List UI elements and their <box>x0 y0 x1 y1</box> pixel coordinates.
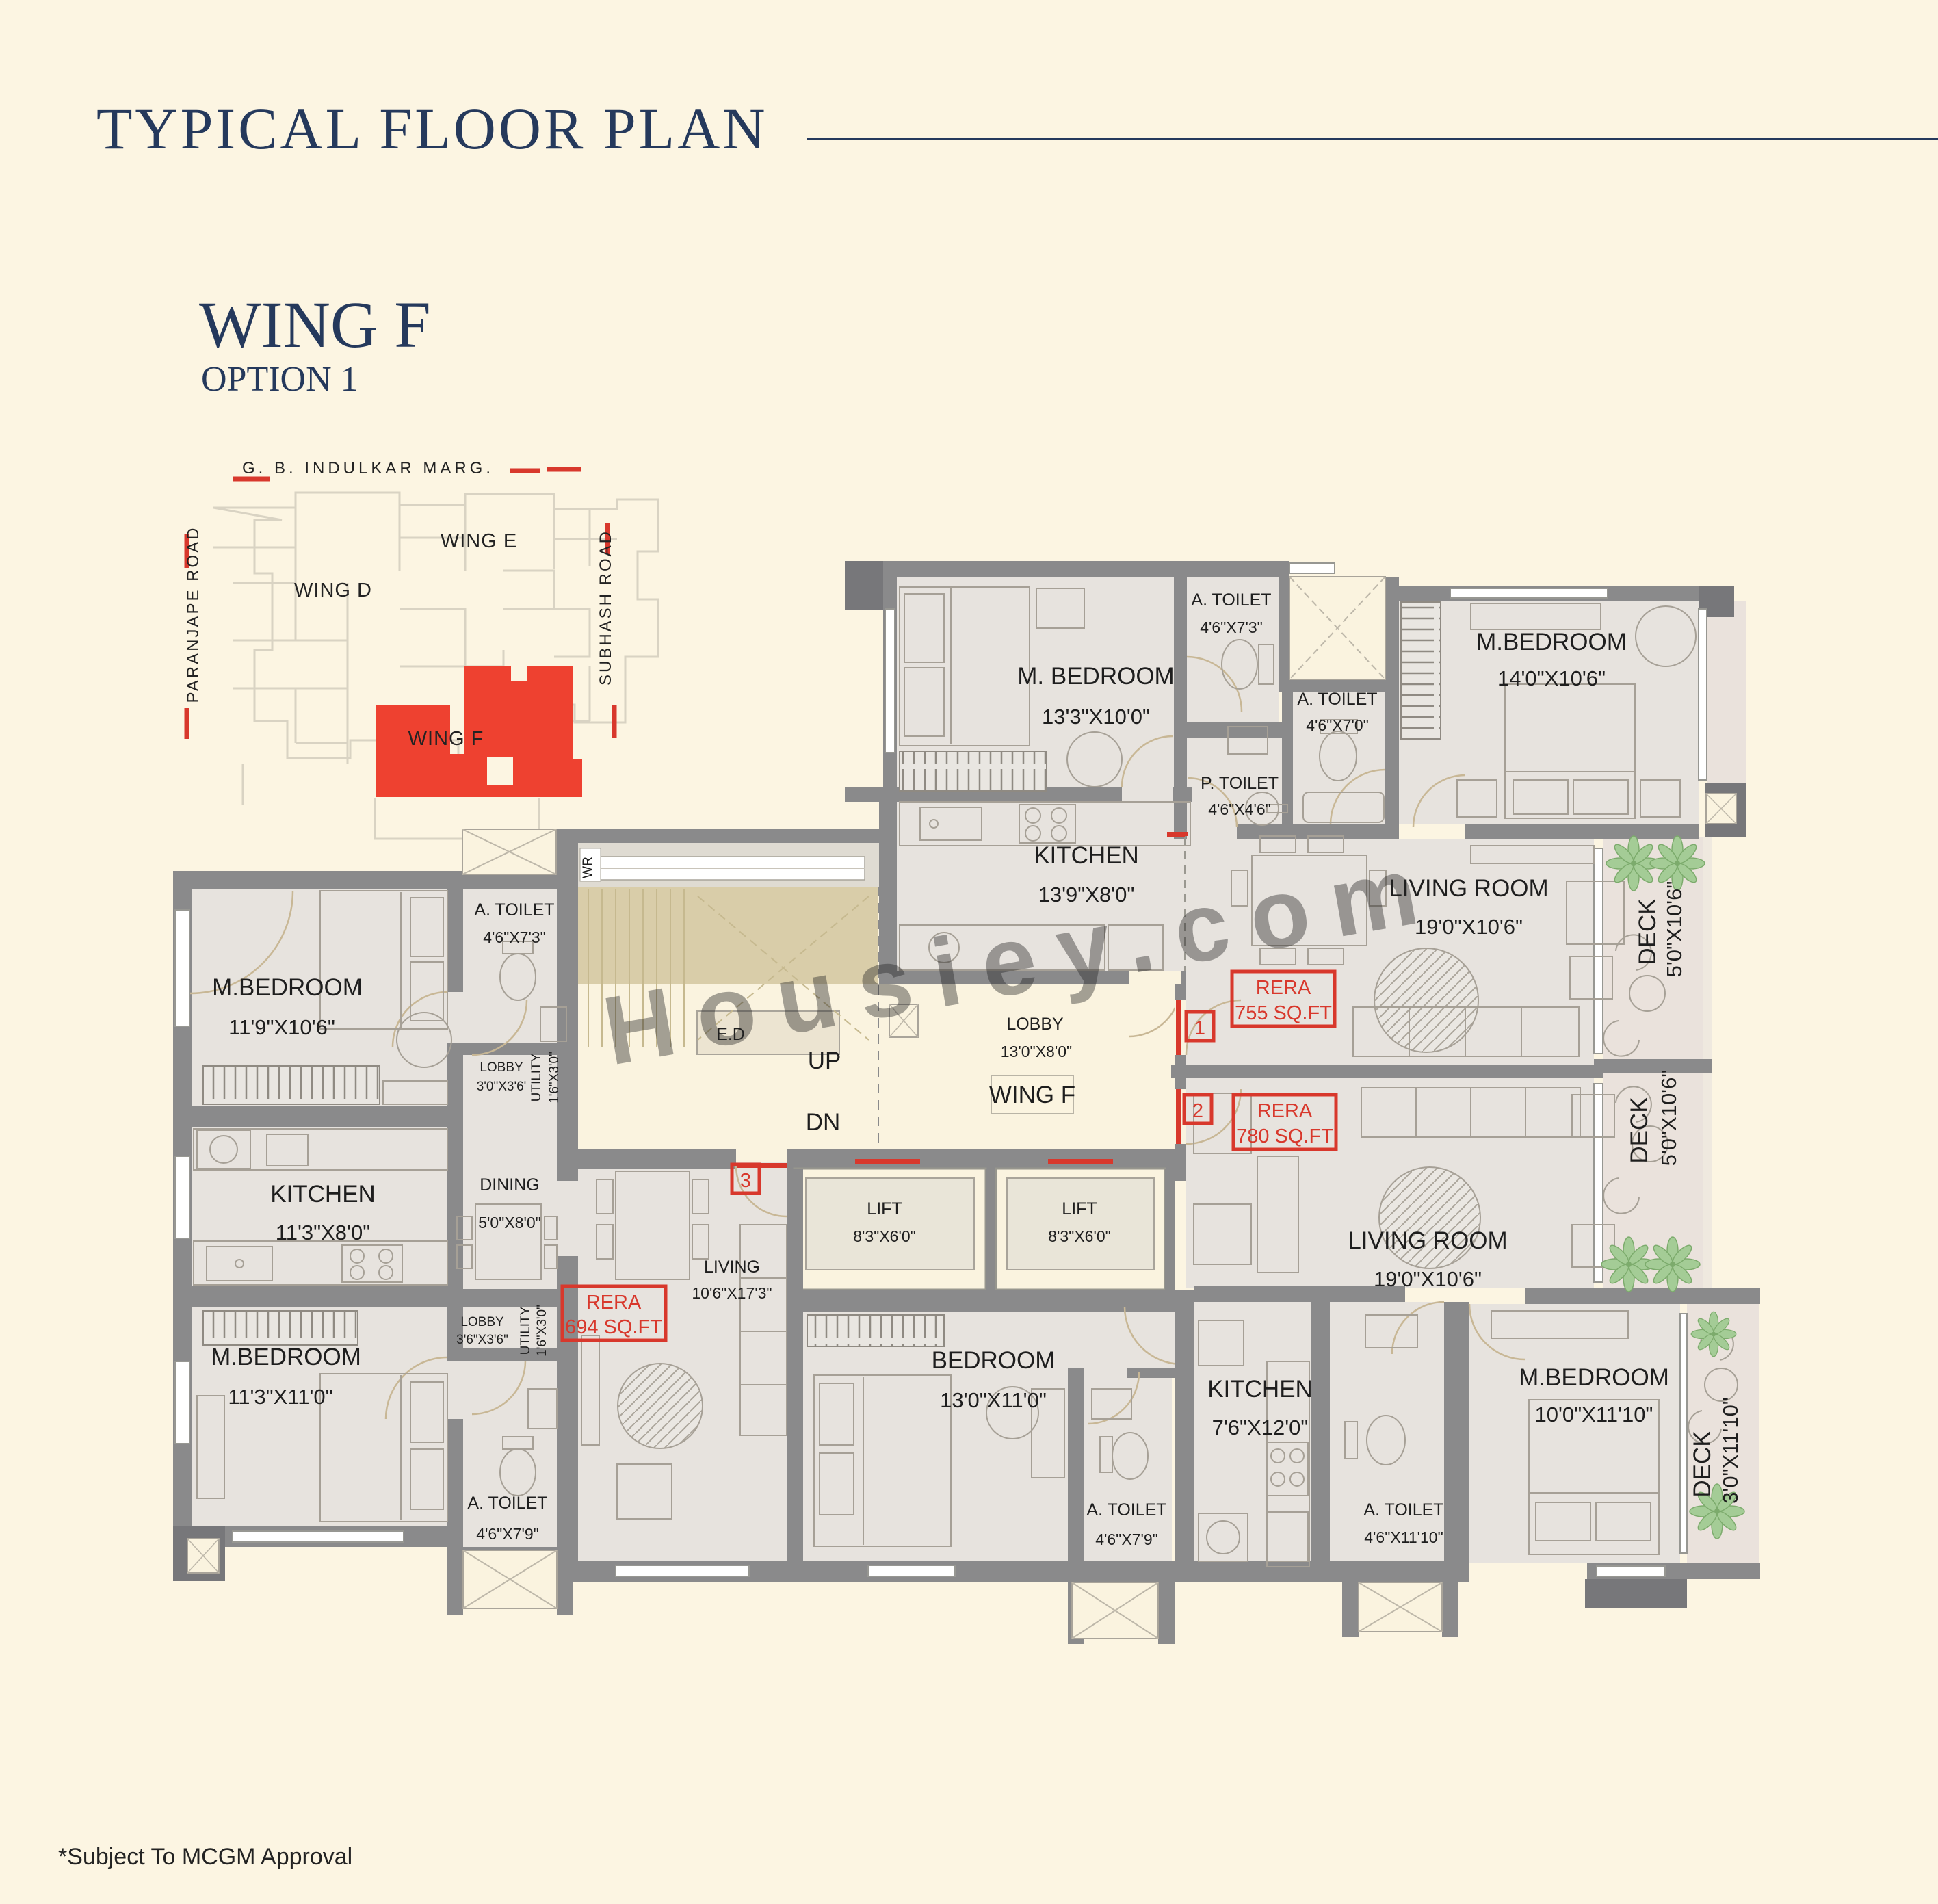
svg-text:4'6"X7'0": 4'6"X7'0" <box>1306 716 1369 734</box>
svg-text:TYPICAL FLOOR PLAN: TYPICAL FLOOR PLAN <box>96 96 768 161</box>
svg-text:RERA: RERA <box>1257 1100 1313 1122</box>
svg-text:UP: UP <box>808 1047 841 1074</box>
svg-text:WING F: WING F <box>989 1082 1075 1108</box>
svg-text:2: 2 <box>1192 1100 1203 1122</box>
svg-text:RERA: RERA <box>586 1292 642 1314</box>
svg-text:1: 1 <box>1194 1017 1205 1039</box>
svg-text:13'0"X11'0": 13'0"X11'0" <box>940 1388 1047 1412</box>
svg-text:780 SQ.FT: 780 SQ.FT <box>1236 1125 1333 1147</box>
svg-text:M.BEDROOM: M.BEDROOM <box>1519 1364 1669 1391</box>
svg-text:11'9"X10'6": 11'9"X10'6" <box>228 1015 335 1039</box>
svg-text:5'0"X8'0": 5'0"X8'0" <box>478 1214 541 1231</box>
svg-text:RERA: RERA <box>1256 977 1311 999</box>
svg-text:KITCHEN: KITCHEN <box>1207 1376 1313 1403</box>
svg-text:8'3"X6'0": 8'3"X6'0" <box>1048 1227 1111 1245</box>
svg-text:UTILITY: UTILITY <box>529 1053 544 1101</box>
svg-text:DECK: DECK <box>1689 1431 1716 1497</box>
svg-text:1'6"X3'0": 1'6"X3'0" <box>535 1305 549 1357</box>
svg-text:11'3"X11'0": 11'3"X11'0" <box>228 1385 332 1409</box>
svg-text:M.BEDROOM: M.BEDROOM <box>1476 629 1627 655</box>
svg-text:A. TOILET: A. TOILET <box>1363 1500 1443 1520</box>
svg-text:4'6"X7'3": 4'6"X7'3" <box>1200 618 1263 636</box>
svg-text:4'6"X7'3": 4'6"X7'3" <box>483 928 546 946</box>
svg-text:4'6"X11'10": 4'6"X11'10" <box>1364 1528 1443 1546</box>
svg-text:4'6"X4'6": 4'6"X4'6" <box>1208 800 1271 818</box>
svg-text:WING F: WING F <box>199 288 431 361</box>
svg-text:M.BEDROOM: M.BEDROOM <box>212 974 363 1001</box>
svg-text:WING F: WING F <box>408 728 484 750</box>
svg-text:LOBBY: LOBBY <box>460 1315 504 1329</box>
svg-text:BEDROOM: BEDROOM <box>932 1347 1056 1374</box>
svg-text:OPTION 1: OPTION 1 <box>201 360 358 399</box>
svg-text:A. TOILET: A. TOILET <box>474 900 554 920</box>
svg-text:3: 3 <box>740 1170 751 1192</box>
svg-text:M. BEDROOM: M. BEDROOM <box>1017 663 1174 690</box>
svg-text:LOBBY: LOBBY <box>1006 1015 1064 1034</box>
svg-text:*Subject To MCGM Approval: *Subject To MCGM Approval <box>58 1844 352 1870</box>
svg-text:P. TOILET: P. TOILET <box>1201 774 1279 793</box>
svg-text:A. TOILET: A. TOILET <box>1086 1500 1166 1520</box>
svg-text:M.BEDROOM: M.BEDROOM <box>211 1344 361 1370</box>
svg-text:DINING: DINING <box>480 1175 540 1195</box>
svg-text:A. TOILET: A. TOILET <box>1297 690 1377 709</box>
svg-text:WING E: WING E <box>441 530 517 552</box>
svg-text:14'0"X10'6": 14'0"X10'6" <box>1497 666 1606 690</box>
svg-text:LOBBY: LOBBY <box>480 1060 523 1075</box>
svg-text:4'6"X7'9": 4'6"X7'9" <box>1095 1530 1158 1548</box>
svg-text:WING D: WING D <box>294 579 372 601</box>
svg-text:PARANJAPE ROAD: PARANJAPE ROAD <box>184 526 202 703</box>
svg-text:KITCHEN: KITCHEN <box>1034 842 1139 869</box>
svg-text:LIFT: LIFT <box>867 1199 902 1218</box>
svg-text:LIFT: LIFT <box>1062 1199 1097 1218</box>
svg-text:UTILITY: UTILITY <box>519 1306 533 1355</box>
svg-text:13'3"X10'0": 13'3"X10'0" <box>1042 705 1150 729</box>
svg-text:5'0"X10'6": 5'0"X10'6" <box>1657 1070 1681 1166</box>
svg-text:4'6"X7'9": 4'6"X7'9" <box>476 1525 539 1543</box>
svg-text:3'0"X3'6': 3'0"X3'6' <box>477 1080 527 1094</box>
svg-text:8'3"X6'0": 8'3"X6'0" <box>853 1227 916 1245</box>
svg-text:10'6"X17'3": 10'6"X17'3" <box>692 1284 772 1302</box>
svg-text:3'0"X11'10": 3'0"X11'10" <box>1718 1397 1742 1504</box>
svg-text:DN: DN <box>806 1109 841 1136</box>
svg-text:G. B. INDULKAR MARG.: G. B. INDULKAR MARG. <box>242 459 494 478</box>
svg-text:755 SQ.FT: 755 SQ.FT <box>1235 1002 1332 1024</box>
svg-text:694 SQ.FT: 694 SQ.FT <box>565 1316 662 1338</box>
svg-text:A. TOILET: A. TOILET <box>467 1494 547 1513</box>
svg-text:7'6"X12'0": 7'6"X12'0" <box>1212 1416 1309 1439</box>
svg-text:10'0"X11'10": 10'0"X11'10" <box>1535 1403 1653 1426</box>
svg-text:A. TOILET: A. TOILET <box>1191 590 1271 610</box>
svg-text:SUBHASH ROAD: SUBHASH ROAD <box>597 530 615 686</box>
svg-text:3'6"X3'6": 3'6"X3'6" <box>456 1333 508 1347</box>
svg-text:5'0"X10'6": 5'0"X10'6" <box>1662 881 1686 978</box>
svg-text:DECK: DECK <box>1634 898 1661 965</box>
svg-text:KITCHEN: KITCHEN <box>270 1181 376 1208</box>
svg-text:11'3"X8'0": 11'3"X8'0" <box>276 1221 370 1244</box>
svg-text:LIVING ROOM: LIVING ROOM <box>1348 1227 1507 1254</box>
svg-text:LIVING: LIVING <box>704 1257 760 1277</box>
svg-text:13'0"X8'0": 13'0"X8'0" <box>1001 1043 1072 1060</box>
svg-text:DECK: DECK <box>1626 1097 1653 1163</box>
svg-text:WR: WR <box>581 857 595 878</box>
svg-text:19'0"X10'6": 19'0"X10'6" <box>1374 1267 1482 1291</box>
svg-text:1'6"X3'0": 1'6"X3'0" <box>547 1052 562 1104</box>
